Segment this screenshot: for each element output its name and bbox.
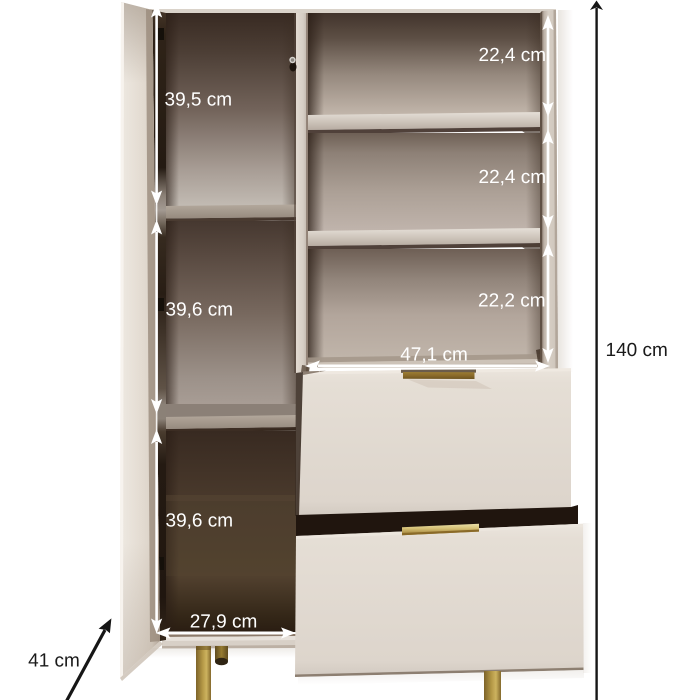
svg-text:39,6 cm: 39,6 cm [166,511,234,532]
svg-text:22,4 cm: 22,4 cm [479,45,547,66]
svg-text:140 cm: 140 cm [606,340,668,361]
svg-text:22,4 cm: 22,4 cm [479,167,547,188]
svg-text:41 cm: 41 cm [28,650,80,671]
svg-text:47,1 cm: 47,1 cm [400,345,468,366]
svg-text:22,2 cm: 22,2 cm [478,291,546,312]
svg-text:39,5 cm: 39,5 cm [165,90,233,111]
svg-text:39,6 cm: 39,6 cm [166,300,234,321]
svg-text:27,9 cm: 27,9 cm [190,611,258,632]
